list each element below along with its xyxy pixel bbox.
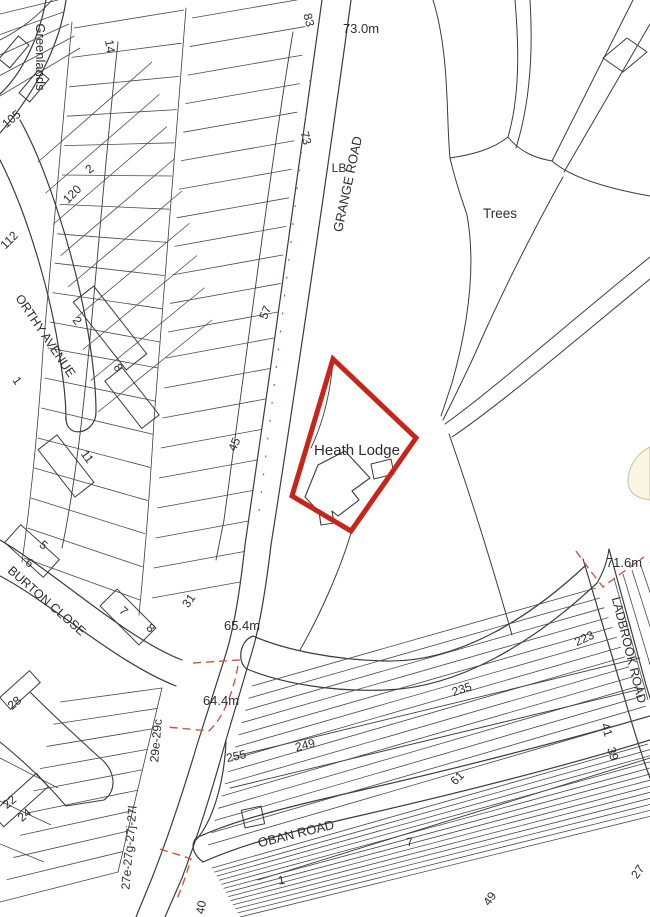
plot-line bbox=[215, 696, 642, 820]
map-label: 235 bbox=[450, 679, 474, 699]
tan-area bbox=[628, 447, 650, 500]
road-path bbox=[450, 137, 508, 158]
plot-line bbox=[161, 430, 262, 449]
map-label: 39 bbox=[604, 745, 622, 762]
map-labels-layer: Greenlands141052120112837373.0mGRANGE RO… bbox=[0, 12, 649, 915]
map-label: 41 bbox=[598, 721, 616, 738]
plot-line bbox=[228, 657, 625, 772]
road-path bbox=[508, 0, 518, 137]
plot-line bbox=[231, 788, 650, 901]
road-path bbox=[516, 0, 531, 148]
plot-line bbox=[222, 677, 634, 796]
plot-line bbox=[64, 143, 174, 146]
plot-line bbox=[172, 255, 283, 275]
plot-line bbox=[252, 588, 596, 686]
plot-line bbox=[238, 805, 650, 913]
map-label: 61 bbox=[447, 768, 467, 788]
plot-line bbox=[163, 399, 266, 418]
map-label: 40 bbox=[193, 899, 209, 915]
road-path bbox=[552, 161, 650, 196]
map-label: 249 bbox=[294, 736, 317, 755]
plot-line bbox=[47, 729, 153, 747]
plot-line bbox=[170, 283, 281, 303]
map-label: 57 bbox=[256, 303, 274, 321]
map-label: 105 bbox=[0, 107, 24, 131]
road-path bbox=[230, 688, 645, 788]
map-label: 31 bbox=[179, 591, 198, 610]
map-label: 27e-27g-27j-27l bbox=[118, 805, 139, 890]
road-path bbox=[136, 0, 322, 917]
plot-line bbox=[0, 0, 58, 14]
plot-line bbox=[0, 758, 58, 788]
plot-line bbox=[50, 322, 160, 342]
map-label: 120 bbox=[60, 182, 84, 206]
road-path bbox=[66, 758, 113, 806]
road-path bbox=[253, 566, 585, 661]
map-label: 71.6m bbox=[606, 555, 642, 570]
road-path bbox=[564, 24, 650, 172]
map-label: 28 bbox=[5, 693, 24, 713]
road-path bbox=[139, 8, 186, 615]
map-label: GRANGE ROAD bbox=[330, 135, 365, 234]
plot-line bbox=[154, 552, 245, 569]
map-viewport: Greenlands141052120112837373.0mGRANGE RO… bbox=[0, 0, 650, 917]
map-label: 7 bbox=[117, 604, 132, 619]
map-label: 24 bbox=[15, 805, 34, 825]
road-path bbox=[452, 279, 650, 437]
road-path bbox=[30, 692, 100, 758]
plot-line bbox=[53, 708, 157, 724]
map-label: LB bbox=[332, 161, 347, 175]
plot-line bbox=[20, 811, 133, 836]
plot-line bbox=[27, 790, 138, 813]
plot-line bbox=[52, 293, 162, 309]
plot-line bbox=[13, 831, 127, 857]
map-label: 11 bbox=[78, 447, 97, 466]
map-label: 49 bbox=[480, 889, 499, 908]
plot-line bbox=[159, 460, 257, 478]
map-label: 29e-29c bbox=[147, 718, 165, 762]
road-path bbox=[445, 257, 650, 424]
map-label: 64.4m bbox=[203, 693, 239, 708]
plot-line bbox=[0, 844, 44, 862]
plot-line bbox=[164, 369, 270, 389]
plot-line bbox=[67, 110, 177, 117]
map-label: 7 bbox=[406, 835, 414, 850]
plot-line bbox=[245, 608, 604, 711]
road-path bbox=[552, 0, 633, 161]
road-path bbox=[300, 533, 351, 650]
plot-line bbox=[152, 582, 240, 598]
plot-line bbox=[157, 491, 253, 509]
map-label: 1 bbox=[10, 374, 25, 388]
map-label: 45 bbox=[225, 435, 243, 453]
map-svg: Greenlands141052120112837373.0mGRANGE RO… bbox=[0, 0, 650, 917]
map-label: 14 bbox=[102, 39, 118, 55]
plot-line bbox=[190, 27, 305, 47]
map-label: 1 bbox=[277, 873, 286, 888]
map-label: 27 bbox=[628, 862, 647, 881]
plot-line bbox=[183, 112, 297, 132]
map-label: 255 bbox=[225, 747, 248, 765]
map-tan-layer bbox=[628, 447, 650, 500]
map-label: BURTON CLOSE bbox=[5, 563, 88, 638]
plot-line bbox=[61, 159, 175, 256]
plot-line bbox=[175, 226, 287, 246]
plot-line bbox=[33, 770, 142, 791]
map-label: 112 bbox=[0, 228, 21, 252]
plot-line bbox=[60, 688, 162, 702]
map-label: ORTHY AVENUE bbox=[13, 292, 79, 380]
plot-line bbox=[55, 263, 165, 275]
plot-line bbox=[242, 618, 609, 723]
plot-line bbox=[166, 338, 274, 358]
plot-line bbox=[192, 0, 308, 18]
map-label: 73.0m bbox=[343, 21, 379, 36]
plot-line bbox=[156, 521, 249, 538]
plot-line bbox=[235, 637, 617, 747]
plot-line bbox=[238, 627, 612, 735]
plot-line bbox=[74, 10, 184, 28]
map-label: 73 bbox=[297, 130, 314, 147]
map-label: 65.4m bbox=[224, 618, 260, 633]
plot-line bbox=[218, 686, 637, 808]
plot-line bbox=[83, 256, 197, 350]
map-label: LADBROOK ROAD bbox=[609, 595, 649, 704]
map-label: Trees bbox=[483, 206, 517, 221]
plot-line bbox=[177, 198, 289, 218]
plot-line bbox=[57, 234, 167, 243]
plot-line bbox=[188, 55, 303, 75]
road-path bbox=[0, 540, 182, 660]
map-label: 2 bbox=[82, 161, 96, 176]
map-label: 223 bbox=[572, 628, 596, 649]
plot-line bbox=[31, 498, 145, 534]
map-label: 83 bbox=[300, 12, 317, 29]
road-path bbox=[247, 583, 597, 690]
building-rect bbox=[38, 435, 94, 497]
map-label: OBAN ROAD bbox=[256, 817, 335, 850]
building-rect bbox=[105, 368, 159, 429]
map-label: Heath Lodge bbox=[314, 442, 400, 459]
plot-line bbox=[179, 169, 292, 189]
map-label: Greenlands bbox=[33, 23, 48, 91]
plot-line bbox=[181, 141, 294, 161]
plot-line bbox=[72, 43, 182, 57]
plot-line bbox=[232, 647, 621, 759]
road-path bbox=[449, 434, 512, 635]
road-path bbox=[508, 137, 552, 161]
building-rect bbox=[0, 36, 29, 68]
plot-line bbox=[0, 872, 118, 902]
road-path bbox=[433, 0, 471, 416]
plot-line bbox=[185, 84, 299, 104]
plot-line bbox=[69, 76, 179, 86]
road-path bbox=[241, 636, 253, 669]
plot-line bbox=[91, 288, 205, 381]
